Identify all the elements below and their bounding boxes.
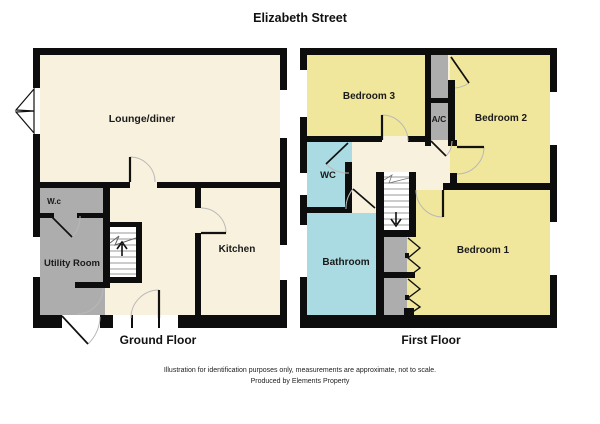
- floorplan-drawing: [0, 0, 600, 424]
- room-utility-area: [40, 188, 105, 315]
- ground-floor-plan: [16, 48, 287, 344]
- floorplan-page: Elizabeth Street Lounge/diner W.c Utilit…: [0, 0, 600, 424]
- first-floor-plan: [300, 48, 557, 328]
- ground-stairs: [110, 227, 136, 277]
- first-stairs: [384, 172, 409, 230]
- french-door-symbol: [16, 89, 34, 133]
